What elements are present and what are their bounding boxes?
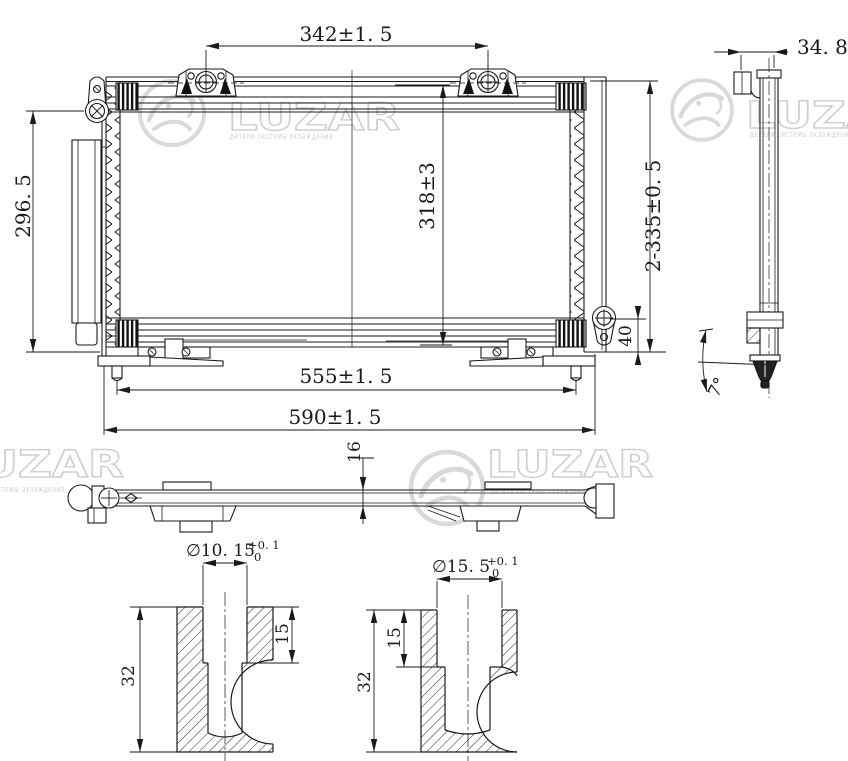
dim-pin-spacing-label: 555±1. 5 xyxy=(299,364,392,388)
section-small-port xyxy=(177,592,273,761)
top-view-left-fitting xyxy=(68,485,142,523)
top-mount-bracket-right xyxy=(450,69,526,96)
dimensions xyxy=(26,46,788,752)
dim-left-height-label: 296. 5 xyxy=(11,174,35,238)
rubber-clip xyxy=(750,355,780,388)
dim-overall-width-label: 590±1. 5 xyxy=(288,405,381,429)
section-b-depth-total-label: 32 xyxy=(355,671,375,693)
watermark-center: LUZAR детали системы охлаждения xyxy=(411,443,653,524)
dim-thickness-label: 16 xyxy=(345,441,365,463)
fin-block xyxy=(556,83,586,110)
section-a-tol-lower: 0 xyxy=(254,550,261,564)
section-a-bore-label: ∅10. 15 xyxy=(186,541,255,561)
dim-overall-height-label: 2-335±0. 5 xyxy=(641,160,665,273)
dim-bracket-offset-label: 40 xyxy=(616,325,636,347)
section-a-tol-upper: +0. 1 xyxy=(248,538,280,552)
top-view-right-fitting xyxy=(584,484,614,518)
fin-block xyxy=(556,320,586,347)
keyhole-bracket xyxy=(593,307,616,346)
section-large-port xyxy=(421,595,517,761)
section-a-depth-total-label: 32 xyxy=(119,665,139,687)
technical-drawing-page: LUZAR детали системы охлаждения LUZAR де… xyxy=(0,0,848,761)
section-b-bore-label: ∅15. 5 xyxy=(432,557,490,577)
condenser-engineering-drawing: LUZAR детали системы охлаждения LUZAR де… xyxy=(0,0,848,761)
dim-depth-label: 34. 8 xyxy=(797,35,848,59)
section-b-bore-depth-label: 15 xyxy=(385,627,405,649)
watermark-subtitle: детали системы охлаждения xyxy=(750,130,848,140)
right-fin-zigzag xyxy=(570,84,584,346)
inlet-fitting xyxy=(86,77,109,123)
fin-block xyxy=(116,83,138,110)
watermark-subtitle: детали системы охлаждения xyxy=(230,132,333,142)
left-fin-zigzag xyxy=(106,84,120,346)
luzar-emblem-icon xyxy=(672,80,732,140)
dim-angle-label: 7° xyxy=(704,374,731,400)
dim-top-mount-spacing-label: 342±1. 5 xyxy=(299,22,392,46)
top-mount-bracket-left xyxy=(168,69,244,96)
watermark-mid-left: LUZAR детали системы охлаждения xyxy=(0,443,124,495)
receiver-drier xyxy=(72,140,106,345)
section-b-tol-lower: 0 xyxy=(492,566,499,580)
fin-block xyxy=(116,320,138,347)
top-view xyxy=(68,482,614,532)
dim-core-height-label: 318±3 xyxy=(415,162,439,230)
section-a-bore-depth-label: 15 xyxy=(273,623,293,645)
watermark-brand: LUZAR xyxy=(0,443,124,486)
watermark-brand: LUZAR xyxy=(487,443,653,486)
watermark-subtitle: детали системы охлаждения xyxy=(0,485,65,495)
